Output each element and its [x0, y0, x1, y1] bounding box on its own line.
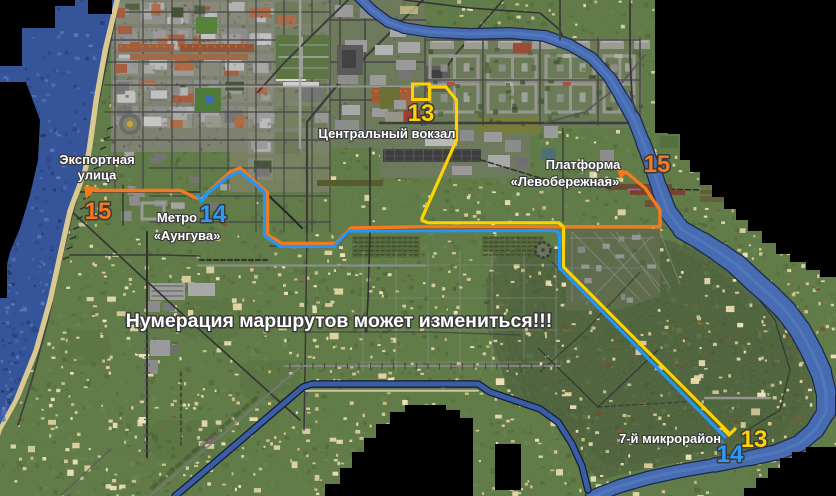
svg-text:Метро: Метро	[157, 210, 197, 225]
svg-text:14: 14	[717, 441, 744, 468]
svg-text:15: 15	[644, 151, 671, 178]
svg-text:7-й микрорайон: 7-й микрорайон	[619, 431, 721, 446]
svg-text:«Аунгува»: «Аунгува»	[154, 228, 221, 243]
svg-text:улица: улица	[78, 168, 117, 183]
svg-text:14: 14	[200, 201, 227, 228]
svg-text:Платформа: Платформа	[546, 157, 622, 172]
svg-text:Нумерация маршрутов может изме: Нумерация маршрутов может измениться!!!	[126, 310, 552, 332]
svg-text:13: 13	[741, 426, 768, 453]
svg-text:Экспортная: Экспортная	[59, 152, 134, 167]
svg-text:15: 15	[85, 198, 112, 225]
svg-text:Центральный вокзал: Центральный вокзал	[318, 126, 455, 141]
svg-text:13: 13	[408, 100, 435, 127]
svg-text:«Левобережная»: «Левобережная»	[511, 174, 620, 189]
